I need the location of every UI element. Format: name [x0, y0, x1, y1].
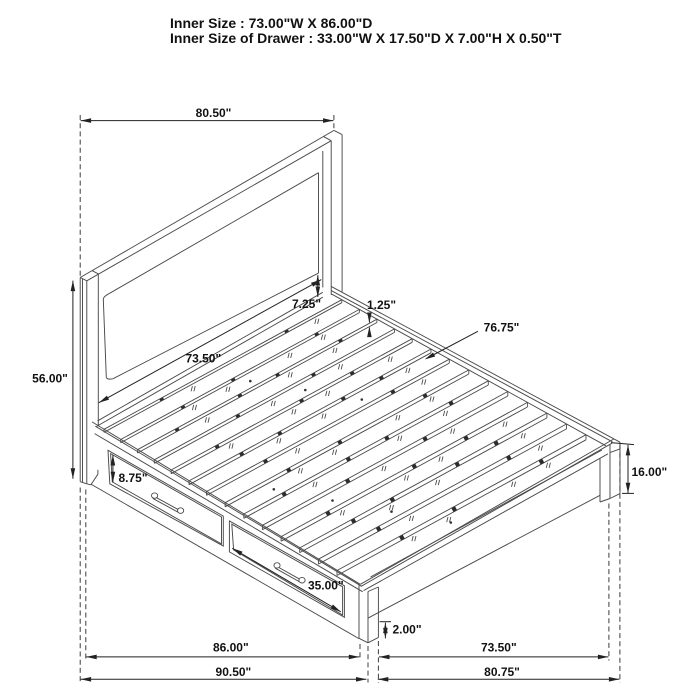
svg-text:80.50": 80.50" — [196, 106, 232, 120]
svg-text:90.50": 90.50" — [216, 665, 252, 679]
svg-text:56.00": 56.00" — [32, 372, 68, 386]
svg-text:1.25": 1.25" — [367, 298, 396, 312]
svg-text:80.75": 80.75" — [484, 665, 520, 679]
svg-text:8.75": 8.75" — [119, 471, 148, 485]
svg-text:35.00": 35.00" — [308, 578, 344, 592]
svg-text:73.50": 73.50" — [481, 640, 517, 654]
svg-text:7.25": 7.25" — [292, 297, 321, 311]
svg-text:16.00": 16.00" — [632, 465, 668, 479]
svg-text:73.50": 73.50" — [185, 351, 221, 365]
svg-text:2.00": 2.00" — [393, 623, 422, 637]
svg-text:76.75": 76.75" — [484, 321, 520, 335]
svg-text:86.00": 86.00" — [213, 640, 249, 654]
